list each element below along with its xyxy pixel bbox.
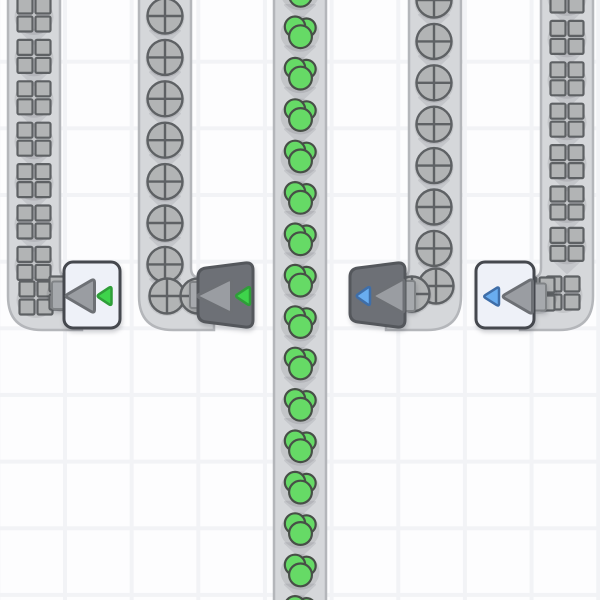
tunnel-entrance-right-blue[interactable] xyxy=(350,263,415,327)
scene-canvas xyxy=(0,0,600,600)
tunnel-entrance-left-green[interactable] xyxy=(190,263,253,327)
game-viewport[interactable] xyxy=(0,0,600,600)
tunnel-exit-right-blue[interactable] xyxy=(476,262,546,328)
